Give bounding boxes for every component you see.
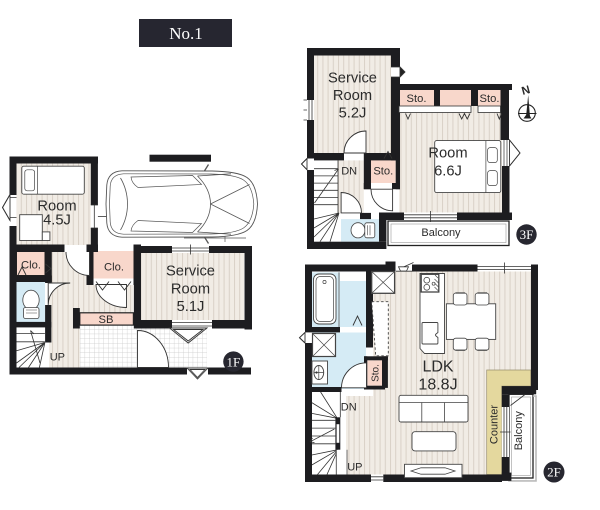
svg-text:18.8J: 18.8J	[418, 377, 457, 394]
svg-text:DN: DN	[341, 401, 357, 413]
svg-text:Sto.: Sto.	[480, 93, 500, 105]
svg-text:No.1: No.1	[169, 24, 203, 43]
svg-text:Sto.: Sto.	[407, 93, 427, 105]
svg-text:Clo.: Clo.	[104, 262, 124, 274]
svg-text:Balcony: Balcony	[513, 411, 525, 451]
svg-text:Counter: Counter	[489, 405, 501, 444]
svg-text:3F: 3F	[520, 227, 534, 242]
svg-text:5.2J: 5.2J	[339, 106, 367, 122]
svg-text:UP: UP	[347, 461, 362, 473]
svg-text:1F: 1F	[227, 354, 241, 369]
svg-text:Room: Room	[428, 146, 467, 162]
svg-text:Room: Room	[171, 282, 210, 298]
svg-text:LDK: LDK	[422, 359, 453, 376]
svg-text:4.5J: 4.5J	[43, 213, 71, 229]
svg-text:2F: 2F	[547, 465, 561, 480]
svg-text:Room: Room	[333, 88, 372, 104]
svg-text:Balcony: Balcony	[421, 227, 461, 239]
svg-text:Sto.: Sto.	[373, 165, 393, 177]
svg-text:Service: Service	[166, 264, 215, 280]
svg-text:Sto.: Sto.	[370, 364, 381, 382]
svg-text:DN: DN	[341, 166, 357, 178]
svg-text:UP: UP	[50, 351, 65, 363]
svg-text:SB: SB	[99, 314, 114, 326]
svg-text:Clo.: Clo.	[21, 259, 41, 271]
svg-text:6.6J: 6.6J	[434, 164, 462, 180]
svg-text:Service: Service	[328, 71, 377, 87]
svg-text:5.1J: 5.1J	[177, 299, 205, 315]
